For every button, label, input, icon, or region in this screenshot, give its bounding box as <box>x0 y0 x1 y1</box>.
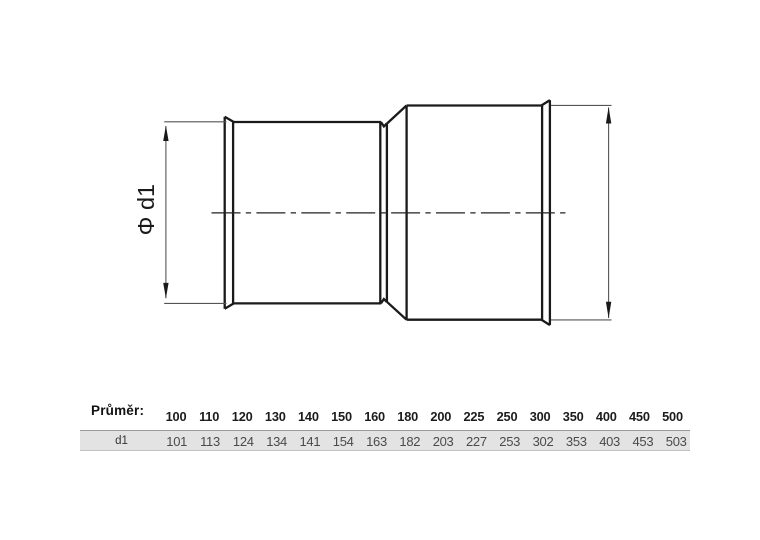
svg-text:Φ d1: Φ d1 <box>133 184 159 235</box>
